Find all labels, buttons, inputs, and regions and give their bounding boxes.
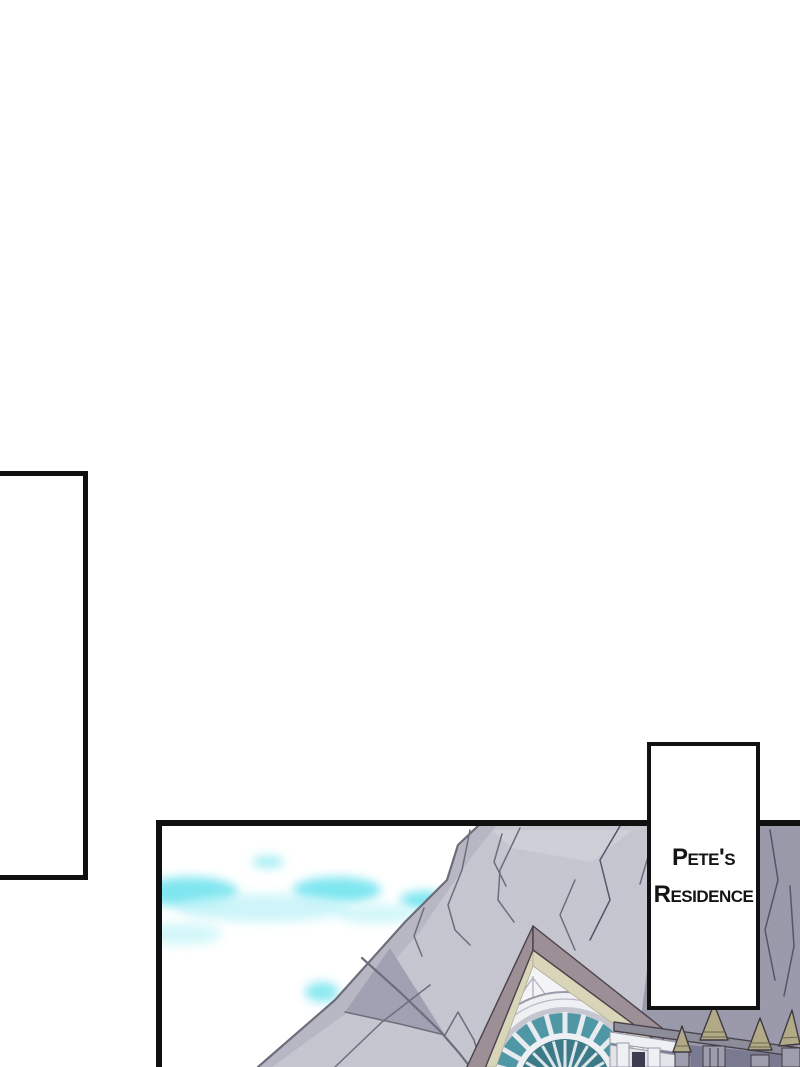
pilaster: [648, 1048, 660, 1067]
caption-box: Pete's Residence: [647, 742, 760, 1010]
caption-line-2: Residence: [654, 876, 754, 913]
comic-page: Pete's Residence: [0, 0, 800, 1067]
left-panel-fragment: [0, 471, 88, 880]
dark-window: [632, 1052, 645, 1067]
pilaster: [617, 1043, 629, 1067]
caption-line-1: Pete's: [672, 839, 735, 876]
